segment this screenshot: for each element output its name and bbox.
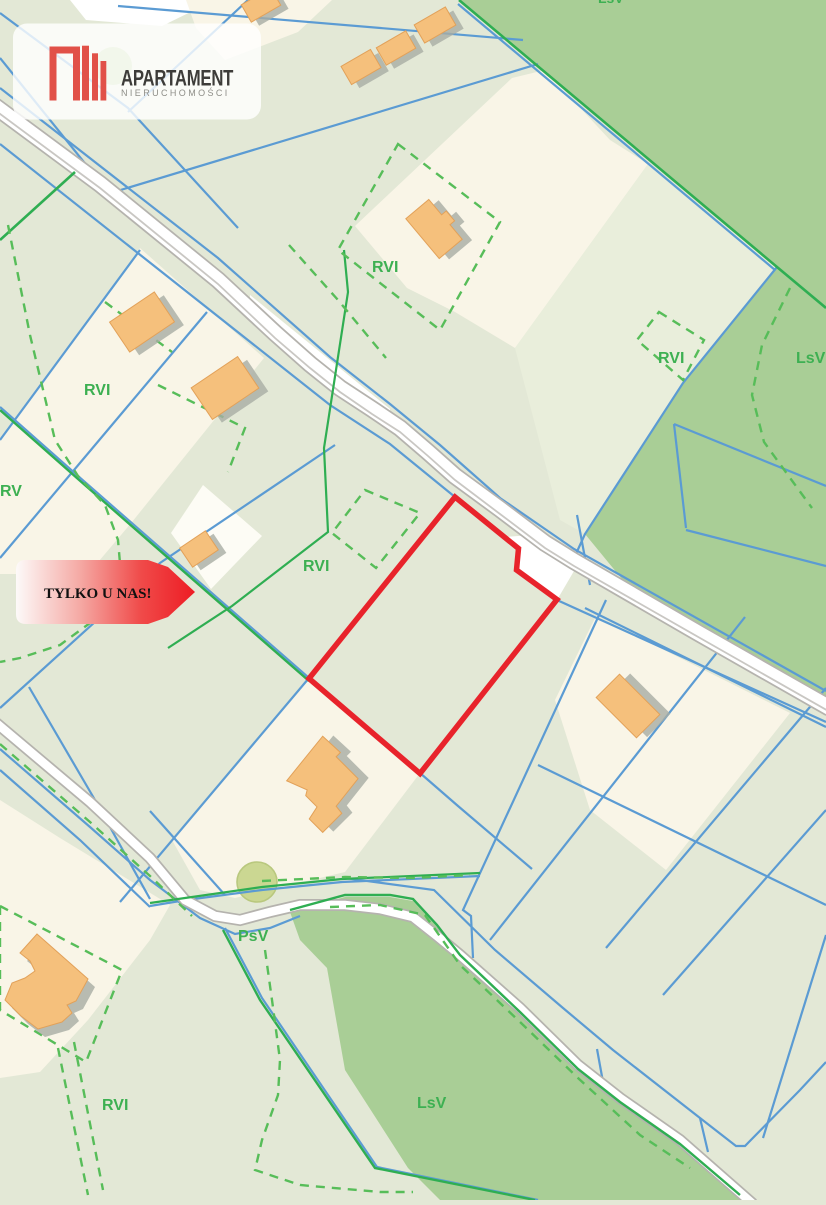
svg-text:TYLKO U NAS!: TYLKO U NAS!: [44, 586, 152, 602]
svg-text:LsV: LsV: [796, 350, 826, 367]
svg-text:RVI: RVI: [102, 1097, 128, 1114]
svg-text:RVI: RVI: [84, 382, 110, 399]
svg-text:LsV: LsV: [598, 0, 624, 6]
svg-text:RVI: RVI: [303, 558, 329, 575]
svg-text:RVI: RVI: [372, 259, 398, 276]
svg-text:LsV: LsV: [417, 1095, 447, 1112]
svg-text:RVI: RVI: [658, 350, 684, 367]
svg-text:RV: RV: [0, 483, 22, 500]
svg-text:PsV: PsV: [238, 928, 269, 945]
svg-text:NIERUCHOMOŚCI: NIERUCHOMOŚCI: [121, 87, 230, 98]
